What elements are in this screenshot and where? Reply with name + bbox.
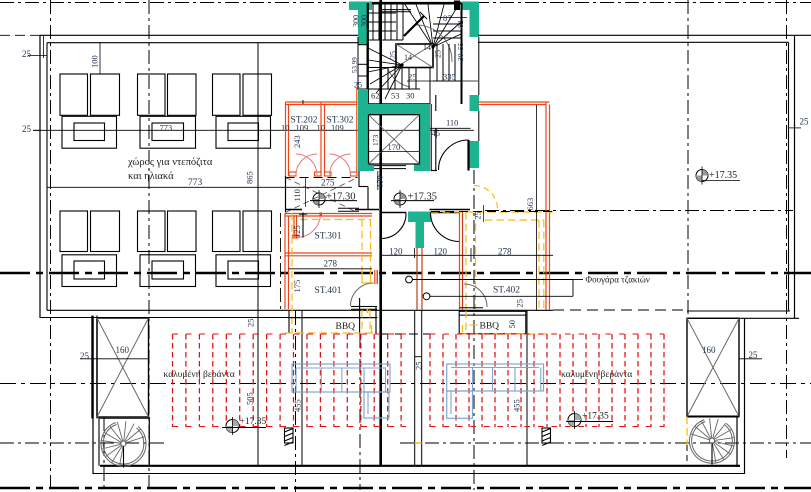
svg-text:50: 50 — [507, 320, 517, 329]
svg-text:25: 25 — [22, 49, 32, 59]
svg-text:120: 120 — [389, 247, 403, 257]
svg-text:χώρος για ντεπόζιτα: χώρος για ντεπόζιτα — [127, 157, 213, 168]
svg-text:25: 25 — [434, 50, 443, 58]
svg-text:30: 30 — [406, 91, 415, 101]
svg-text:55: 55 — [456, 42, 465, 50]
svg-text:14: 14 — [404, 53, 412, 62]
svg-text:30: 30 — [456, 53, 465, 61]
svg-text:25: 25 — [408, 72, 417, 82]
svg-text:773: 773 — [160, 123, 173, 133]
svg-text:25: 25 — [246, 319, 256, 328]
svg-text:170: 170 — [388, 142, 401, 152]
svg-text:45: 45 — [432, 128, 441, 138]
svg-text:110: 110 — [292, 189, 302, 201]
svg-text:87: 87 — [443, 13, 452, 23]
svg-text:και ηλιακά: και ηλιακά — [128, 171, 174, 182]
svg-text:455: 455 — [512, 399, 522, 412]
svg-text:275: 275 — [321, 178, 335, 188]
svg-text:278: 278 — [324, 259, 338, 269]
svg-text:100: 100 — [90, 55, 100, 68]
svg-text:10: 10 — [317, 123, 326, 133]
svg-text:505: 505 — [245, 392, 255, 405]
svg-text:BBQ: BBQ — [480, 322, 500, 332]
svg-text:62: 62 — [371, 91, 380, 101]
svg-text:10: 10 — [281, 123, 290, 133]
svg-text:25: 25 — [474, 212, 483, 220]
svg-text:+17.35: +17.35 — [709, 170, 737, 181]
svg-text:130: 130 — [375, 175, 385, 188]
svg-text:300: 300 — [360, 15, 369, 27]
svg-text:243: 243 — [292, 135, 302, 148]
svg-text:ST.401: ST.401 — [315, 286, 342, 296]
svg-text:+17.35: +17.35 — [582, 412, 609, 422]
svg-text:53: 53 — [391, 91, 400, 101]
svg-text:BBQ: BBQ — [336, 322, 356, 332]
svg-text:Φουγάρα τζακιών: Φουγάρα τζακιών — [586, 275, 650, 285]
svg-text:773: 773 — [188, 178, 203, 188]
svg-text:53.99: 53.99 — [351, 57, 359, 73]
svg-text:καλυμένη βεράντα: καλυμένη βεράντα — [561, 370, 632, 380]
svg-text:82: 82 — [456, 20, 465, 28]
svg-text:ST.402: ST.402 — [493, 286, 520, 296]
svg-text:175: 175 — [292, 280, 302, 293]
svg-text:455: 455 — [293, 399, 303, 412]
svg-text:14: 14 — [423, 43, 431, 52]
svg-text:καλυμένη βεράντα: καλυμένη βεράντα — [164, 370, 235, 380]
svg-text:25: 25 — [354, 81, 362, 90]
svg-text:ST.301: ST.301 — [315, 232, 342, 242]
svg-text:865: 865 — [245, 171, 255, 184]
svg-text:120: 120 — [434, 247, 448, 257]
svg-text:25: 25 — [80, 351, 90, 361]
svg-text:109: 109 — [296, 123, 309, 133]
svg-text:25: 25 — [515, 299, 525, 308]
svg-text:663: 663 — [525, 198, 535, 211]
svg-text:160: 160 — [116, 345, 130, 355]
svg-text:25: 25 — [389, 51, 398, 59]
svg-text:25: 25 — [414, 362, 424, 371]
svg-text:+17.35: +17.35 — [240, 417, 267, 427]
svg-text:335: 335 — [443, 72, 456, 82]
svg-text:278: 278 — [498, 247, 512, 257]
svg-text:160: 160 — [702, 345, 716, 355]
svg-text:25: 25 — [800, 117, 810, 127]
svg-text:109: 109 — [331, 123, 344, 133]
svg-text:25: 25 — [22, 124, 32, 134]
svg-text:125: 125 — [292, 225, 302, 238]
svg-text:173: 173 — [371, 135, 380, 147]
svg-text:25: 25 — [749, 350, 759, 360]
svg-text:110: 110 — [446, 118, 458, 128]
